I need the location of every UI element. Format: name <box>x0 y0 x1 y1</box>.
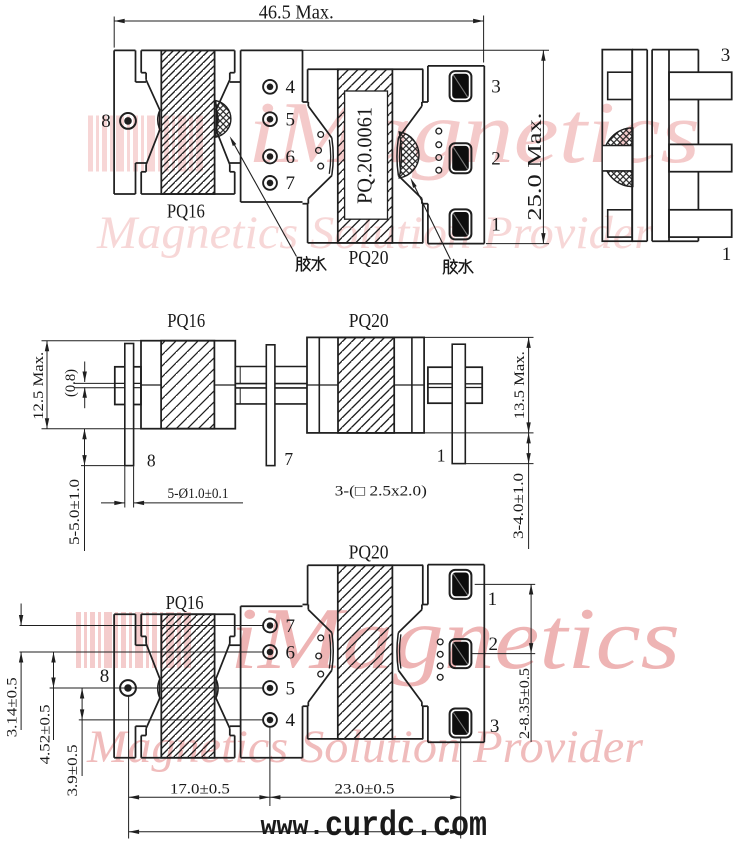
svg-text:3-(□ 2.5x2.0): 3-(□ 2.5x2.0) <box>335 484 427 500</box>
svg-text:3: 3 <box>721 45 731 66</box>
svg-text:6: 6 <box>286 147 296 168</box>
svg-text:3: 3 <box>491 77 501 98</box>
svg-text:5: 5 <box>286 110 296 131</box>
svg-text:17.0±0.5: 17.0±0.5 <box>170 782 230 798</box>
svg-text:23.0±0.5: 23.0±0.5 <box>335 782 395 798</box>
svg-text:25.0 Max.: 25.0 Max. <box>524 113 546 221</box>
svg-text:PQ16: PQ16 <box>166 592 204 614</box>
svg-text:2: 2 <box>491 149 501 170</box>
svg-text:7: 7 <box>284 449 293 469</box>
svg-text:PQ20: PQ20 <box>349 247 389 269</box>
svg-text:8: 8 <box>100 666 110 687</box>
svg-text:(0.8): (0.8) <box>63 369 79 397</box>
svg-text:7: 7 <box>286 173 296 194</box>
svg-text:7: 7 <box>286 616 296 637</box>
svg-text:PQ16: PQ16 <box>167 201 205 223</box>
svg-text:6: 6 <box>286 642 296 663</box>
svg-text:PQ.20.0061: PQ.20.0061 <box>353 107 377 204</box>
svg-text:8: 8 <box>101 111 111 132</box>
svg-text:5: 5 <box>286 678 296 699</box>
svg-text:www.: www. <box>261 813 325 843</box>
svg-text:4: 4 <box>286 77 296 98</box>
svg-text:12.5 Max.: 12.5 Max. <box>31 352 47 420</box>
svg-text:5-Ø1.0±0.1: 5-Ø1.0±0.1 <box>168 486 229 502</box>
svg-text:5-5.0±1.0: 5-5.0±1.0 <box>67 479 83 545</box>
svg-text:1: 1 <box>722 244 732 265</box>
svg-text:1: 1 <box>491 215 501 236</box>
svg-text:3.14±0.5: 3.14±0.5 <box>4 677 20 737</box>
svg-text:1: 1 <box>437 446 446 466</box>
svg-text:46.5 Max.: 46.5 Max. <box>259 2 334 24</box>
svg-text:curdc.com: curdc.com <box>325 806 487 844</box>
svg-text:3-4.0±1.0: 3-4.0±1.0 <box>511 473 527 539</box>
svg-text:3.9±0.5: 3.9±0.5 <box>65 745 81 797</box>
svg-text:PQ16: PQ16 <box>167 310 205 332</box>
svg-text:3: 3 <box>490 716 500 737</box>
svg-text:2: 2 <box>489 634 499 655</box>
svg-text:2-8.35±0.5: 2-8.35±0.5 <box>517 668 533 739</box>
svg-text:4.52±0.5: 4.52±0.5 <box>38 704 54 764</box>
svg-text:8: 8 <box>147 451 156 471</box>
svg-text:13.5 Max.: 13.5 Max. <box>512 351 528 419</box>
svg-text:PQ20: PQ20 <box>349 310 389 332</box>
svg-text:1: 1 <box>488 589 498 610</box>
svg-text:4: 4 <box>286 710 296 731</box>
svg-text:PQ20: PQ20 <box>349 541 389 563</box>
